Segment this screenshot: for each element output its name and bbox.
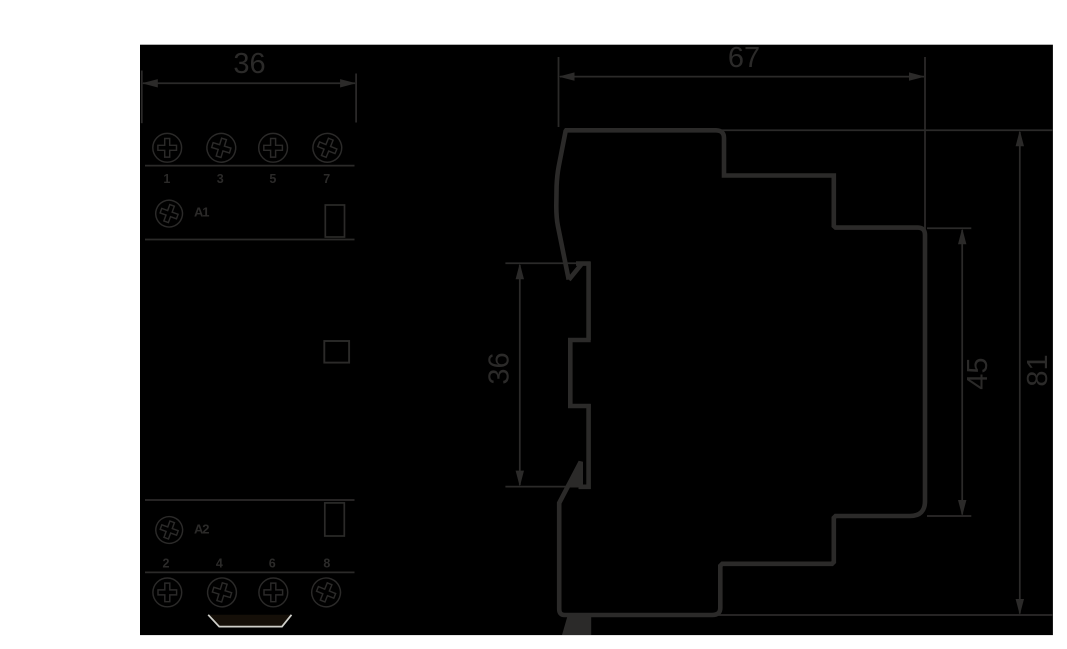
svg-text:36: 36 xyxy=(233,48,265,80)
svg-text:3: 3 xyxy=(217,172,224,186)
svg-text:2: 2 xyxy=(163,556,170,570)
svg-text:36: 36 xyxy=(484,352,516,384)
svg-text:8: 8 xyxy=(323,556,330,570)
svg-text:4: 4 xyxy=(216,556,223,570)
svg-text:7: 7 xyxy=(323,172,330,186)
svg-text:67: 67 xyxy=(728,42,760,74)
svg-text:5: 5 xyxy=(269,172,276,186)
svg-text:1: 1 xyxy=(163,172,170,186)
svg-text:81: 81 xyxy=(1022,354,1054,386)
svg-text:A2: A2 xyxy=(194,522,209,537)
svg-text:45: 45 xyxy=(962,357,994,389)
svg-text:A1: A1 xyxy=(194,204,209,219)
svg-text:6: 6 xyxy=(269,556,276,570)
